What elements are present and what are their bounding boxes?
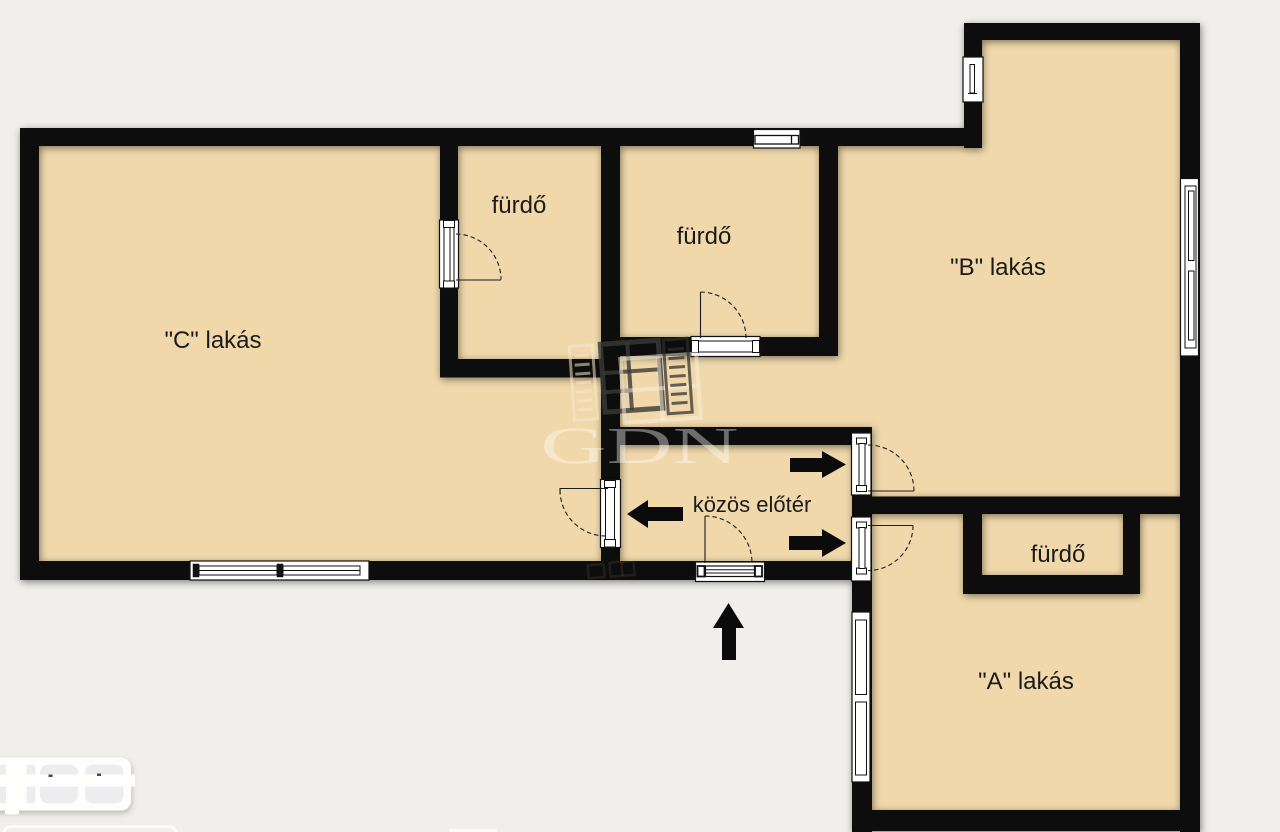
- svg-text:"B" lakás: "B" lakás: [950, 254, 1046, 281]
- svg-text:GDN: GDN: [541, 418, 739, 475]
- svg-text:"C" lakás: "C" lakás: [164, 327, 261, 354]
- svg-text:fürdő: fürdő: [677, 223, 732, 250]
- svg-text:közös előtér: közös előtér: [693, 492, 812, 517]
- svg-text:fürdő: fürdő: [1031, 541, 1086, 568]
- svg-text:"A" lakás: "A" lakás: [978, 668, 1074, 695]
- svg-text:fürdő: fürdő: [492, 192, 547, 219]
